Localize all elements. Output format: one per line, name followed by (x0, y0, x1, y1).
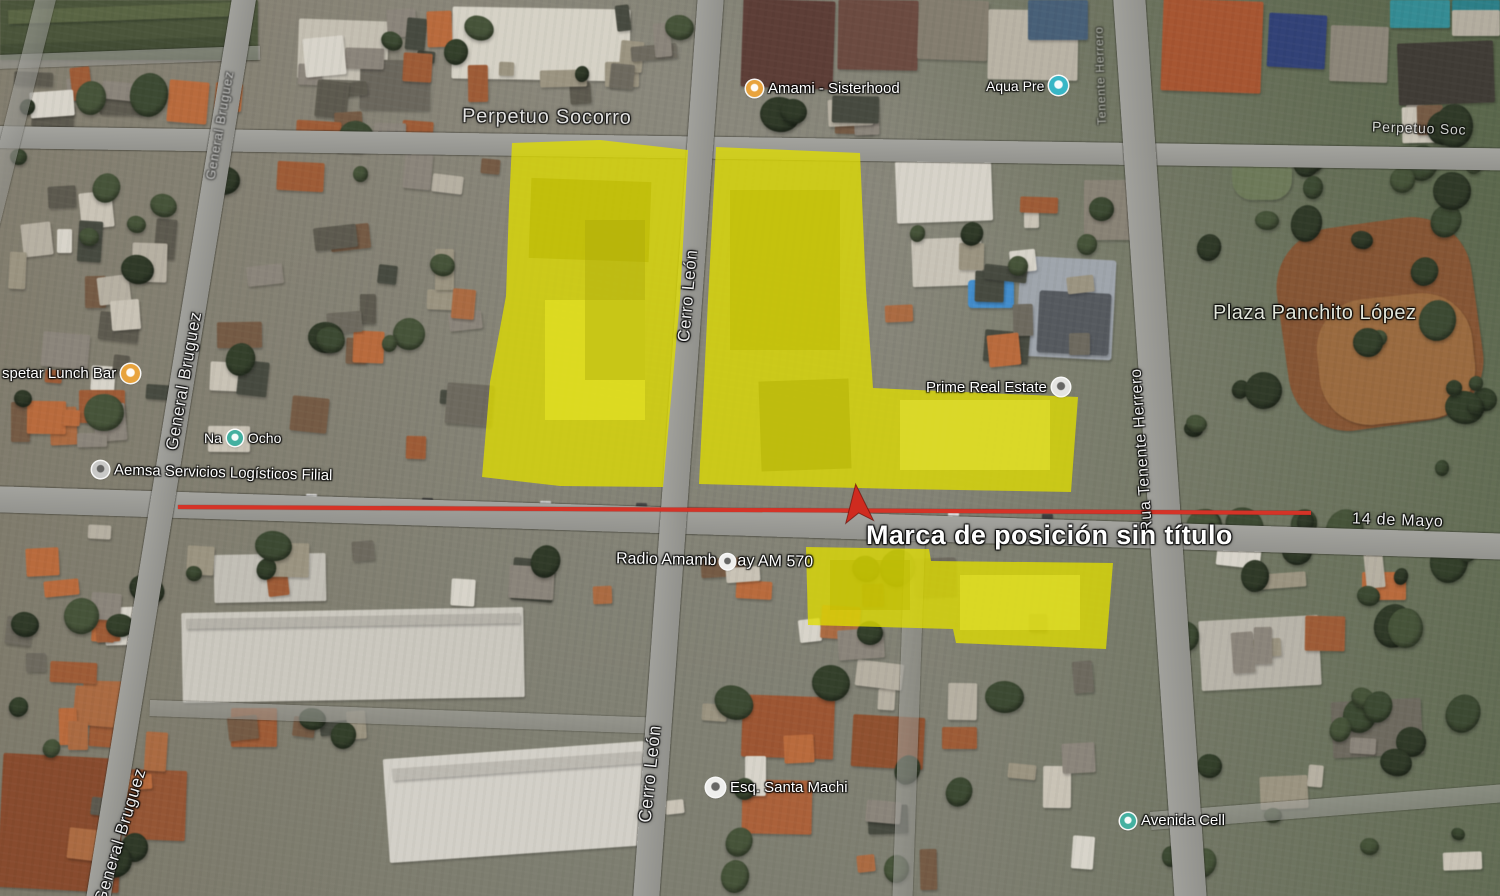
esq-santa-label: Esq. Santa Machi (730, 779, 848, 796)
lunch-bar-label: spetar Lunch Bar (2, 365, 116, 382)
street-label-14-de-mayo: 14 de Mayo (1352, 510, 1444, 531)
aemsa-poi-icon (92, 461, 109, 478)
restaurant-poi-icon (121, 364, 140, 383)
esq-santa-poi-icon (706, 778, 725, 797)
avenida-cell-label: Avenida Cell (1141, 812, 1225, 829)
prime-poi-icon (1052, 378, 1070, 396)
poi-avenida-cell[interactable]: Avenida Cell (1120, 812, 1225, 829)
aqua-label: Aqua Pre (986, 78, 1044, 94)
poi-aqua[interactable]: Aqua Pre (986, 76, 1068, 95)
poi-lunch-bar[interactable]: spetar Lunch Bar (2, 364, 140, 383)
radio-label-right: ay AM 570 (737, 552, 813, 571)
aqua-poi-icon (1049, 76, 1068, 95)
ocho-label: Ocho (248, 430, 281, 446)
placemark-label: Marca de posición sin título (866, 520, 1233, 551)
plaza-panchito-lopez-label: Plaza Panchito López (1213, 302, 1416, 325)
poi-radio-amambay[interactable]: Radio Amamb ay AM 570 (616, 550, 813, 571)
amami-poi-icon (746, 80, 763, 97)
satellite-map-canvas[interactable]: Perpetuo Socorro Perpetuo Soc General Br… (0, 0, 1500, 896)
na-ocho-poi-icon (227, 430, 243, 446)
poi-prime-real-estate[interactable]: Prime Real Estate (926, 378, 1070, 396)
poi-amami-sisterhood[interactable]: Amami - Sisterhood (746, 80, 900, 97)
poi-na-ocho[interactable]: Na Ocho (204, 430, 281, 446)
poi-esq-santa[interactable]: Esq. Santa Machi (706, 778, 848, 797)
radio-label-left: Radio Amamb (616, 550, 717, 570)
street-label-perpetuo-socorro: Perpetuo Socorro (462, 105, 632, 130)
amami-label: Amami - Sisterhood (768, 80, 900, 97)
prime-label: Prime Real Estate (926, 379, 1047, 396)
avenida-cell-poi-icon (1120, 813, 1136, 829)
na-label: Na (204, 430, 222, 446)
street-label-perpetuo-socorro-right: Perpetuo Soc (1372, 118, 1467, 137)
radio-poi-icon (719, 554, 734, 569)
